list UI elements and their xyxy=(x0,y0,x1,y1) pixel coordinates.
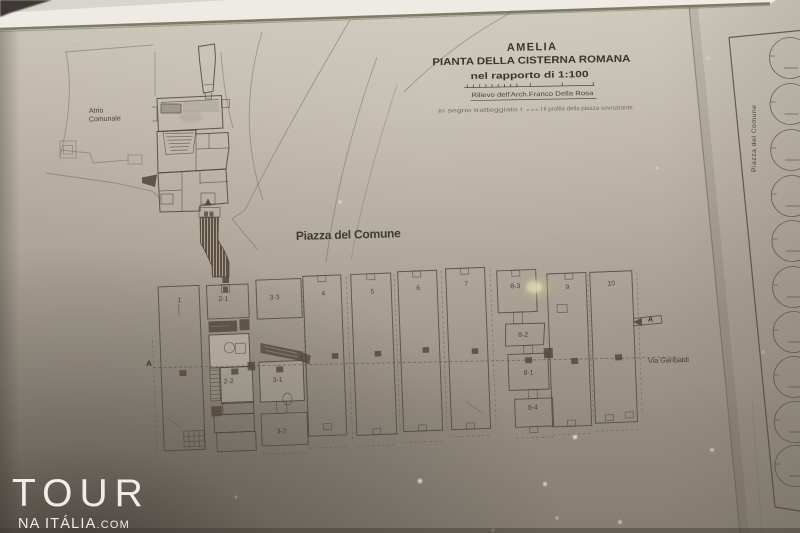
svg-text:8-4: 8-4 xyxy=(528,404,538,411)
svg-text:nel rapporto di 1:100: nel rapporto di 1:100 xyxy=(471,69,589,81)
svg-text:2-1: 2-1 xyxy=(218,296,228,303)
svg-text:Via Garibaldi: Via Garibaldi xyxy=(648,355,690,365)
svg-text:5: 5 xyxy=(370,289,374,296)
svg-text:3-1: 3-1 xyxy=(273,377,283,384)
svg-text:6: 6 xyxy=(416,285,420,292)
svg-text:10: 10 xyxy=(607,280,615,287)
svg-text:3-2: 3-2 xyxy=(277,428,287,435)
svg-text:Piazza del Comune: Piazza del Comune xyxy=(751,105,758,172)
svg-text:4: 4 xyxy=(321,291,325,298)
svg-text:1: 1 xyxy=(177,297,181,304)
svg-text:Atrio: Atrio xyxy=(89,107,104,115)
svg-text:8-1: 8-1 xyxy=(523,370,533,377)
svg-text:A: A xyxy=(648,317,653,324)
svg-text:TOUR: TOUR xyxy=(12,472,150,515)
svg-text:9: 9 xyxy=(565,284,569,291)
svg-text:2-2: 2-2 xyxy=(224,378,234,385)
svg-text:Comunale: Comunale xyxy=(89,115,121,123)
svg-text:Piazza del Comune: Piazza del Comune xyxy=(296,226,402,243)
svg-text:8-3: 8-3 xyxy=(510,283,520,290)
svg-text:8-2: 8-2 xyxy=(518,332,528,339)
svg-text:7: 7 xyxy=(464,281,468,288)
svg-text:A: A xyxy=(146,359,152,368)
svg-text:AMELIA: AMELIA xyxy=(507,41,558,54)
svg-text:3-3: 3-3 xyxy=(269,294,279,301)
